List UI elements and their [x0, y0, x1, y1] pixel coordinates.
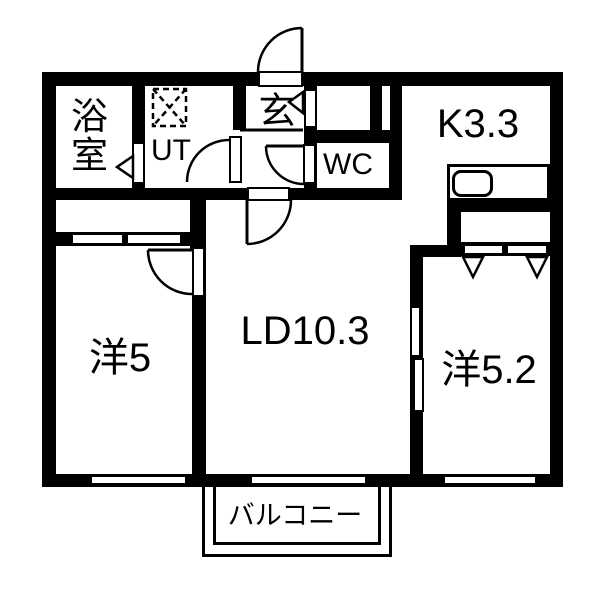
entrance-label: 玄	[259, 93, 296, 130]
closet52-folding-icon-a	[463, 257, 483, 277]
bath-folding-door-icon	[117, 156, 133, 178]
toilet-label: WC	[323, 150, 373, 180]
closet52-folding-icon-b	[527, 257, 547, 277]
floor-plan: 浴室 UT 玄 WC K3.3 LD10.3 洋5 洋5.2 バルコニー	[0, 0, 600, 600]
balcony-label: バルコニー	[228, 503, 362, 530]
western-room5-label: 洋5	[89, 338, 151, 378]
western-room52-label: 洋5.2	[441, 350, 537, 390]
wc-door-arc	[266, 146, 304, 184]
room5-door-arc	[148, 250, 192, 294]
utility-label: UT	[151, 136, 191, 166]
hall-ld-door-arc	[247, 200, 291, 244]
ut-door-arc	[187, 140, 229, 182]
kitchen-label: K3.3	[437, 104, 519, 144]
entrance-door-arc	[258, 28, 302, 72]
bathroom-label: 浴室	[71, 98, 111, 176]
living-dining-label: LD10.3	[241, 311, 370, 351]
